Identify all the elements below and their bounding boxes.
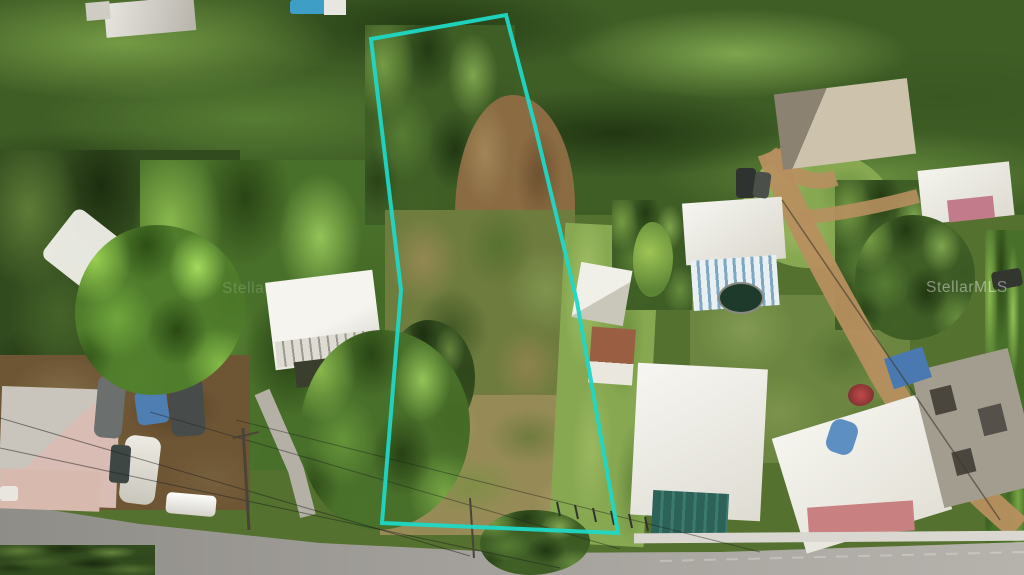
property-boundary-polygon (371, 15, 618, 533)
boundary-svg (0, 0, 1024, 575)
aerial-photo: StellarMLS StellarMLS (0, 0, 1024, 575)
watermark-left: StellarMLS (222, 280, 304, 298)
watermark-right: StellarMLS (926, 279, 1008, 297)
